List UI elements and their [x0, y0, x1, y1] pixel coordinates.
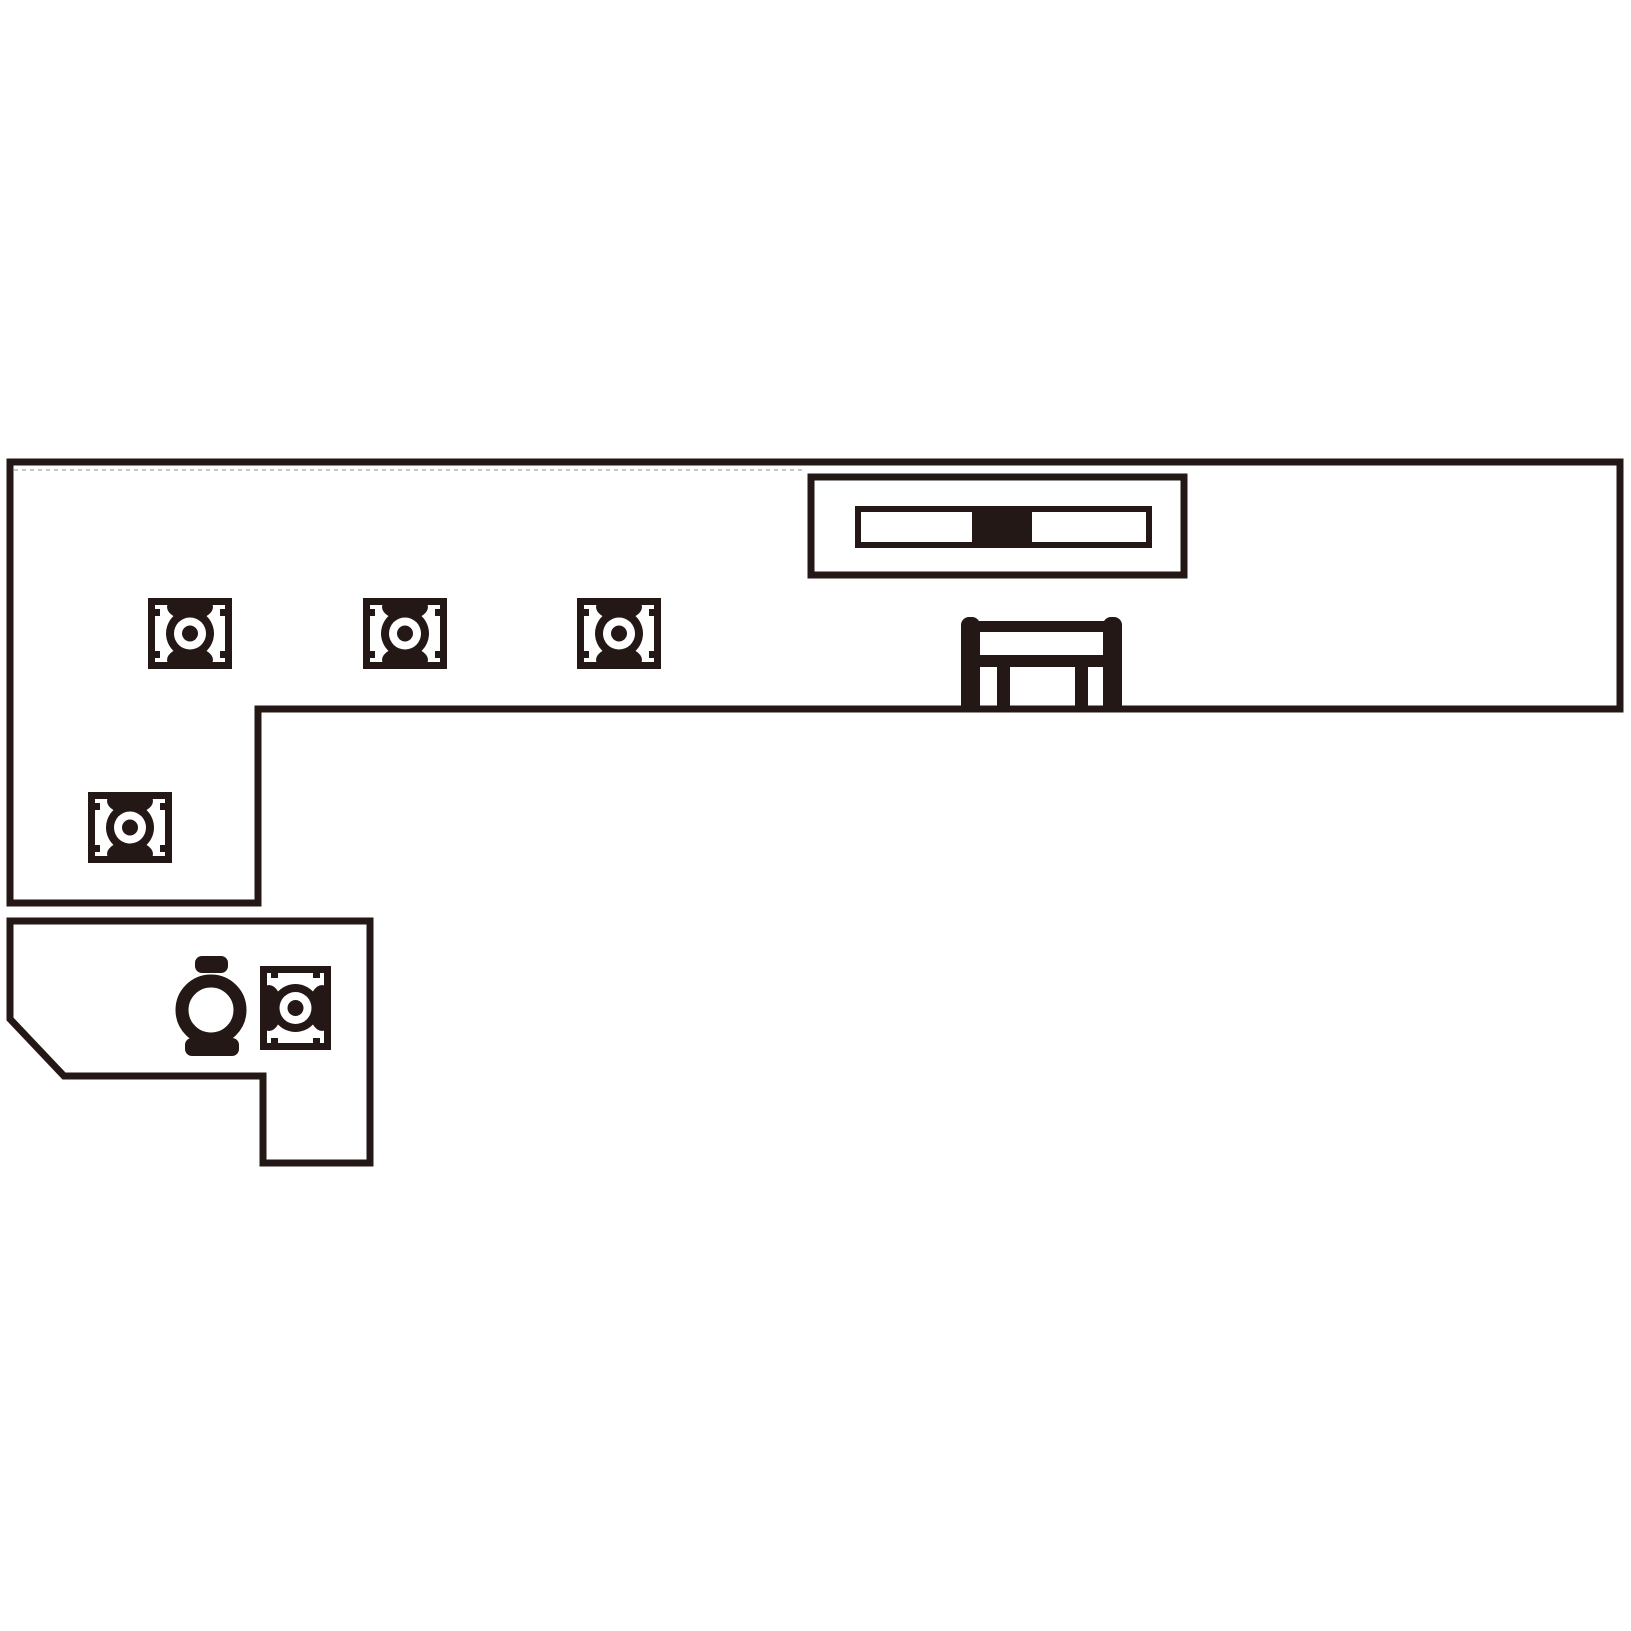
- bench-left-leg: [997, 665, 1010, 709]
- kitchen-plan-drawing: [0, 0, 1631, 1631]
- bench-right-post: [1103, 617, 1122, 710]
- burner-2-icon: [367, 594, 444, 673]
- burner-4-icon: [92, 788, 169, 867]
- burner-3-icon: [581, 594, 658, 673]
- bench-right-leg: [1075, 665, 1088, 709]
- burner-1-icon: [152, 594, 229, 673]
- bench-left-post: [961, 617, 980, 710]
- burner-5-icon: [256, 970, 335, 1047]
- kettle-lid: [195, 956, 228, 973]
- bench-top-rail: [978, 621, 1105, 632]
- kettle-base: [185, 1038, 239, 1056]
- cad-canvas: [0, 0, 1631, 1631]
- fixture-dark-block: [972, 506, 1032, 548]
- kettle-body: [182, 981, 240, 1039]
